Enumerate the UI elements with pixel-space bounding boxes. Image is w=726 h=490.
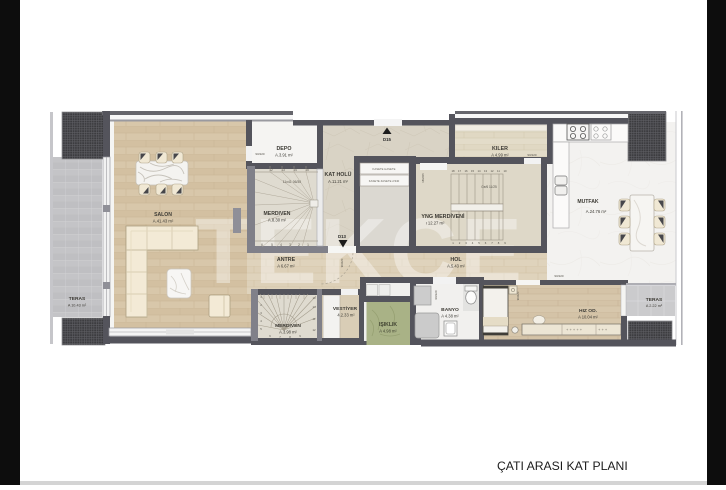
svg-text:TERAS: TERAS (646, 297, 663, 303)
svg-text:12: 12 (490, 169, 494, 173)
svg-text:A 10.43 m²: A 10.43 m² (68, 304, 87, 308)
svg-text:D15: D15 (383, 137, 391, 142)
svg-text:A 4.98 m²: A 4.98 m² (379, 329, 397, 334)
svg-text:KILER: KILER (492, 146, 508, 152)
svg-text:IŞIKLIK: IŞIKLIK (379, 322, 397, 328)
svg-text:10: 10 (503, 169, 507, 173)
svg-text:11: 11 (497, 169, 500, 173)
svg-text:90/220: 90/220 (255, 152, 265, 156)
svg-text:ANTRE: ANTRE (277, 257, 296, 263)
svg-text:12: 12 (312, 328, 316, 332)
svg-text:1: 1 (307, 243, 309, 247)
svg-text:15: 15 (471, 169, 475, 173)
svg-text:A 4.99 m²: A 4.99 m² (491, 153, 509, 158)
svg-text:90/220: 90/220 (554, 274, 564, 278)
svg-text:4: 4 (280, 243, 282, 247)
svg-text:Ge/6 11/25: Ge/6 11/25 (481, 185, 497, 189)
svg-text:DEPO: DEPO (276, 146, 291, 152)
svg-text:MUTFAK: MUTFAK (577, 199, 599, 205)
svg-text:A.3.98 m²: A.3.98 m² (279, 330, 297, 335)
svg-text:17: 17 (458, 169, 462, 173)
svg-text:+ + +: + + + (598, 327, 608, 332)
svg-text:A 2.22 m²: A 2.22 m² (646, 304, 663, 308)
svg-text:HIZ OD.: HIZ OD. (579, 308, 598, 314)
svg-text:11x41 06/30: 11x41 06/30 (283, 180, 302, 184)
svg-text:4.2.33 m²: 4.2.33 m² (337, 313, 355, 318)
svg-text:90/220: 90/220 (527, 153, 537, 157)
svg-text:A.8.30 m²: A.8.30 m² (268, 218, 287, 223)
svg-text:KASETE HASETE: KASETE HASETE (372, 167, 395, 171)
svg-text:A 10.04 m²: A 10.04 m² (578, 315, 598, 320)
svg-text:+ + + + +: + + + + + (566, 327, 583, 332)
svg-text:3: 3 (289, 243, 291, 247)
svg-text:KASETE ZASETE 2/340: KASETE ZASETE 2/340 (369, 179, 400, 183)
svg-text:13: 13 (281, 168, 285, 172)
svg-text:VESTİYER: VESTİYER (333, 305, 358, 312)
svg-text:12: 12 (269, 168, 273, 172)
svg-text:MERDIVEN: MERDIVEN (264, 211, 291, 217)
svg-text:BANYO: BANYO (441, 307, 459, 313)
svg-text:16: 16 (464, 169, 468, 173)
svg-text:14: 14 (477, 169, 481, 173)
svg-text:A 6.67 m²: A 6.67 m² (277, 264, 295, 269)
svg-text:A 4.38 m²: A 4.38 m² (441, 314, 459, 319)
svg-text:15: 15 (305, 168, 309, 172)
svg-text:90/220: 90/220 (434, 290, 438, 300)
svg-text:ÇATI ARASI KAT PLANI: ÇATI ARASI KAT PLANI (497, 459, 628, 473)
svg-text:13: 13 (312, 296, 316, 300)
svg-text:A.41.43 m²: A.41.43 m² (153, 219, 174, 224)
svg-text:2: 2 (298, 243, 300, 247)
svg-text:18: 18 (451, 169, 455, 173)
svg-text:A.24.76 m²: A.24.76 m² (586, 209, 607, 214)
svg-text:14: 14 (312, 305, 316, 309)
svg-text:YNG MERDİVENİ: YNG MERDİVENİ (421, 213, 465, 220)
svg-text:180/205: 180/205 (421, 173, 425, 183)
svg-text:ı 12.27 m²: ı 12.27 m² (426, 221, 445, 226)
svg-text:A.5.43 m²: A.5.43 m² (447, 264, 465, 269)
svg-text:HOL: HOL (450, 257, 462, 263)
svg-text:A.3.91 m²: A.3.91 m² (275, 153, 293, 158)
svg-text:90/220: 90/220 (340, 258, 344, 267)
svg-text:SALON: SALON (154, 212, 172, 218)
svg-text:13: 13 (484, 169, 488, 173)
svg-text:5: 5 (271, 243, 273, 247)
svg-text:MERDIVEN: MERDIVEN (275, 323, 301, 329)
svg-text:6: 6 (261, 243, 263, 247)
svg-text:11: 11 (313, 317, 316, 321)
svg-text:D13: D13 (338, 234, 346, 239)
svg-text:TERAS: TERAS (69, 296, 86, 302)
svg-text:KAT HOLÜ: KAT HOLÜ (325, 171, 352, 178)
svg-text:14: 14 (293, 168, 297, 172)
svg-text:A.11.21 m²: A.11.21 m² (328, 179, 348, 184)
